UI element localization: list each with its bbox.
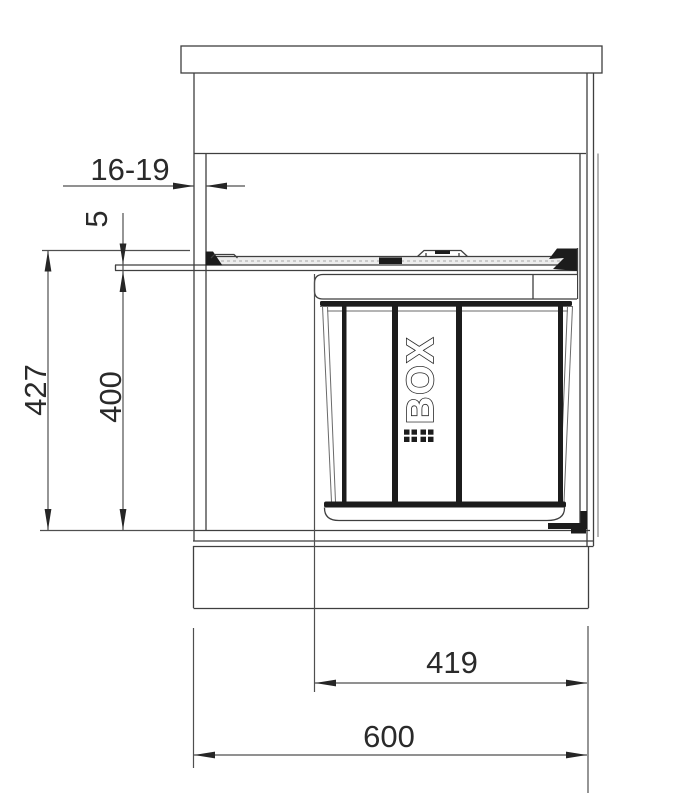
frame-bar — [342, 306, 347, 503]
bin-base-rail — [324, 502, 566, 508]
dim-label-bin-width: 419 — [426, 645, 478, 680]
frame-bar — [456, 306, 462, 503]
bin-lid — [315, 275, 578, 300]
dimension-total-height: 427 — [18, 251, 53, 531]
bin-bottom — [325, 508, 565, 521]
bin-rim — [320, 301, 572, 306]
drawing-canvas: BOX 16-19 5 427 — [0, 0, 699, 800]
dim-label-rail-height: 5 — [79, 210, 114, 227]
dim-label-front-thickness: 16-19 — [90, 152, 169, 187]
bin-brand-label: BOX — [400, 336, 442, 424]
frame-bar — [392, 306, 398, 503]
box-brand-logo-icon — [404, 430, 434, 443]
dim-label-cabinet-width: 600 — [363, 719, 415, 754]
dimension-bin-width: 419 — [315, 645, 587, 686]
waste-bin: BOX — [315, 275, 588, 534]
dimension-front-thickness: 16-19 — [63, 152, 245, 189]
rail-stop-block — [379, 258, 402, 265]
dim-label-total-height: 427 — [18, 364, 53, 416]
dimension-rail-height: 5 — [79, 210, 126, 530]
countertop — [181, 46, 602, 73]
frame-bar — [558, 306, 563, 503]
technical-drawing: BOX 16-19 5 427 — [0, 0, 699, 800]
dimension-cabinet-width: 600 — [194, 719, 587, 758]
dim-label-bin-height: 400 — [93, 371, 128, 423]
